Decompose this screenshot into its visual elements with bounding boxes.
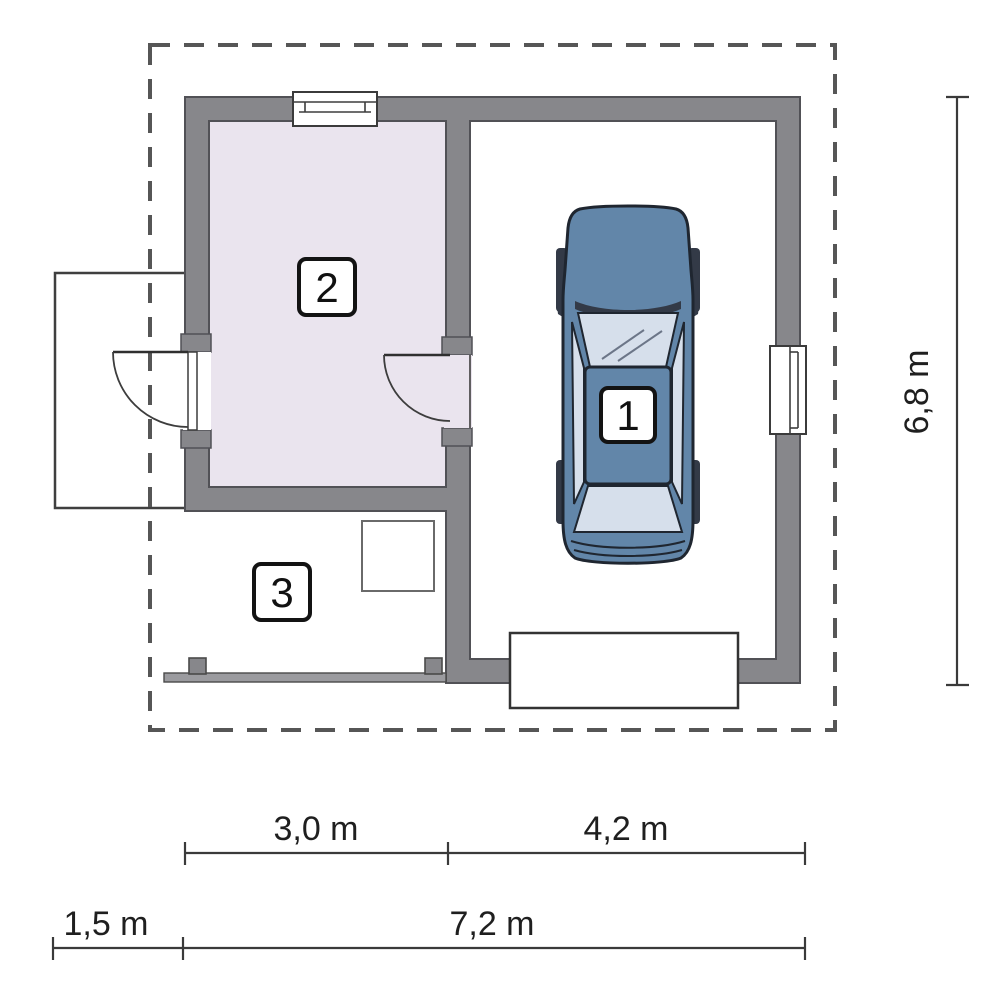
jamb bbox=[181, 430, 211, 448]
dim-label-3-0: 3,0 m bbox=[273, 810, 358, 848]
room-1-number: 1 bbox=[616, 392, 639, 439]
jamb bbox=[181, 334, 211, 352]
wall-divider bbox=[446, 121, 470, 511]
floor-plan-drawing: 1 2 3 3,0 m 4,2 m 1,5 m 7,2 m 6,8 m bbox=[0, 0, 1000, 988]
window-east bbox=[770, 346, 806, 434]
wall-garage-west bbox=[446, 511, 470, 683]
jamb bbox=[442, 337, 472, 355]
dim-label-4-2: 4,2 m bbox=[583, 810, 668, 848]
carport-post bbox=[189, 658, 206, 674]
carport-post bbox=[425, 658, 442, 674]
dim-label-7-2: 7,2 m bbox=[449, 905, 534, 943]
room-3-number: 3 bbox=[270, 569, 293, 616]
garage-door bbox=[510, 633, 738, 708]
car-rear-window bbox=[574, 486, 682, 532]
window-north bbox=[293, 92, 377, 126]
wall-north bbox=[185, 97, 800, 121]
room-2-number: 2 bbox=[315, 264, 338, 311]
dim-label-6-8: 6,8 m bbox=[898, 349, 936, 434]
entry-door-leaf bbox=[188, 352, 197, 430]
interior-door-opening bbox=[444, 355, 472, 428]
carport-storage-box bbox=[362, 521, 434, 591]
floor-plan-page: 1 2 3 3,0 m 4,2 m 1,5 m 7,2 m 6,8 m bbox=[0, 0, 1000, 988]
window-east-frame bbox=[770, 346, 806, 434]
car bbox=[556, 206, 700, 563]
wall-south-right-stub bbox=[734, 659, 800, 683]
wall-west bbox=[185, 97, 209, 511]
dim-label-1-5: 1,5 m bbox=[63, 905, 148, 943]
entrance-porch bbox=[55, 273, 186, 508]
wall-room2-south bbox=[185, 487, 470, 511]
carport-edge bbox=[164, 658, 446, 682]
wall-south-left-stub bbox=[446, 659, 512, 683]
jamb bbox=[442, 428, 472, 446]
